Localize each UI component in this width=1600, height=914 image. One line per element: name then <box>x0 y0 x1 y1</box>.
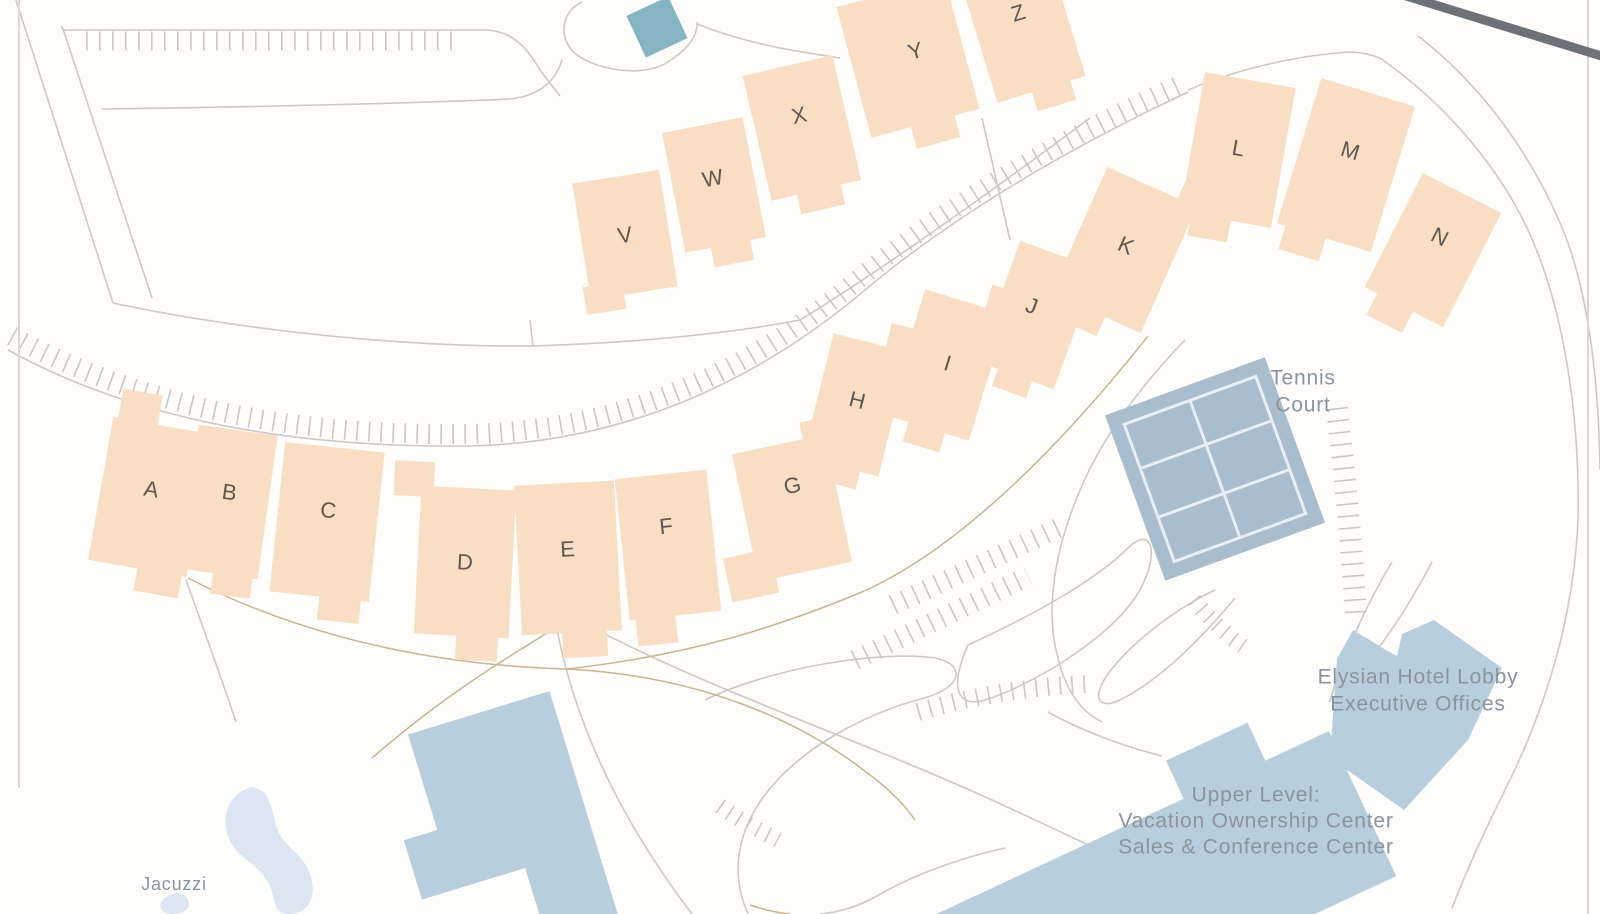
parking-row <box>918 684 1088 712</box>
road-line <box>102 60 562 109</box>
building-C: C <box>267 442 385 625</box>
building-X: X <box>743 55 866 220</box>
road-line <box>1048 712 1162 756</box>
road-line <box>530 320 533 346</box>
road-line <box>697 24 840 58</box>
parking-row <box>1194 600 1243 646</box>
building-letter: D <box>456 549 473 575</box>
walkway-line <box>750 905 790 914</box>
building-footprint-tab <box>723 548 779 602</box>
label-jacuzzi: Jacuzzi <box>141 874 207 894</box>
building-letter: C <box>319 497 338 524</box>
building-E: E <box>514 480 623 660</box>
building-footprint-tab <box>117 389 162 430</box>
label-upper-level-line: Upper Level: <box>1192 784 1321 807</box>
building-footprint <box>615 470 721 621</box>
label-upper-level-line: Vacation Ownership Center <box>1118 810 1393 833</box>
parking-row <box>1337 408 1356 618</box>
road-line <box>16 0 113 303</box>
building-letter: E <box>560 536 576 562</box>
building-footprint-tab <box>317 592 362 624</box>
parking-row <box>893 528 1058 605</box>
building-footprint-tab <box>393 460 435 497</box>
road-line <box>62 26 152 298</box>
building-footprint-tab <box>210 566 254 599</box>
building-Y: Y <box>836 0 985 159</box>
building-footprint <box>836 0 979 138</box>
plunge-pool <box>626 0 687 58</box>
jacuzzi-pool <box>225 787 312 914</box>
label-tennis-court: TennisCourt <box>1270 367 1336 417</box>
label-upper-level-line: Sales & Conference Center <box>1118 836 1394 859</box>
label-jacuzzi-line: Jacuzzi <box>141 874 207 894</box>
label-elysian-hotel-line: Executive Offices <box>1330 693 1505 716</box>
building-footprint-tab <box>562 626 609 658</box>
building-letter: F <box>658 513 674 539</box>
jacuzzi-pool-small <box>161 893 190 914</box>
plunge-pool-shape <box>626 0 687 58</box>
building-W: W <box>662 117 770 272</box>
building-footprint-tab <box>455 630 499 662</box>
parking-row <box>855 576 1028 660</box>
building-footprint <box>743 55 861 200</box>
label-tennis-court-line: Court <box>1275 394 1330 417</box>
building-F: F <box>615 470 724 648</box>
road-line <box>62 30 560 96</box>
building-footprint-tab <box>635 611 678 647</box>
road-line <box>113 303 800 346</box>
road-line <box>1099 590 1235 704</box>
label-elysian-hotel-line: Elysian Hotel Lobby <box>1318 666 1519 689</box>
label-tennis-court-line: Tennis <box>1270 367 1336 390</box>
building-D: D <box>385 460 518 662</box>
building-Z: Z <box>962 0 1091 122</box>
parking-row <box>720 806 778 840</box>
road-line <box>186 580 236 722</box>
road-line <box>958 539 1152 701</box>
resort-map-image: ABCDEFGHIJKLMNVWXYZ TennisCourtElysian H… <box>0 0 1600 914</box>
tennis-court <box>1105 357 1325 581</box>
building-V: V <box>566 170 679 315</box>
resort-map-page: ABCDEFGHIJKLMNVWXYZ TennisCourtElysian H… <box>0 0 1600 914</box>
